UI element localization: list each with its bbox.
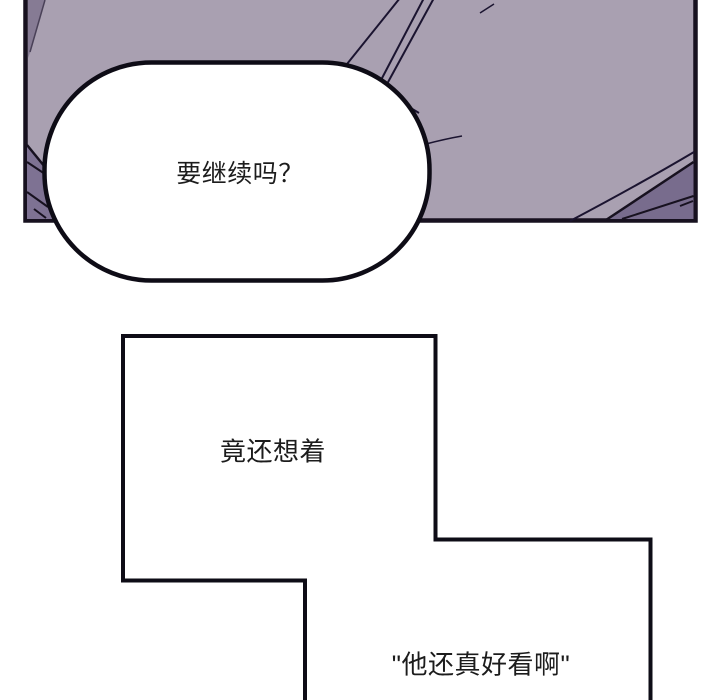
caption-boxes-outline <box>123 336 651 700</box>
comic-art-layer <box>0 0 720 700</box>
narration-box-text: 竟还想着 <box>220 432 326 469</box>
speech-bubble-text: 要继续吗？ <box>176 154 304 190</box>
panel-illustration <box>26 0 696 281</box>
comic-page: 要继续吗？ 竟还想着 "他还真好看啊" <box>0 0 720 700</box>
quote-box-text: "他还真好看啊" <box>392 645 570 682</box>
